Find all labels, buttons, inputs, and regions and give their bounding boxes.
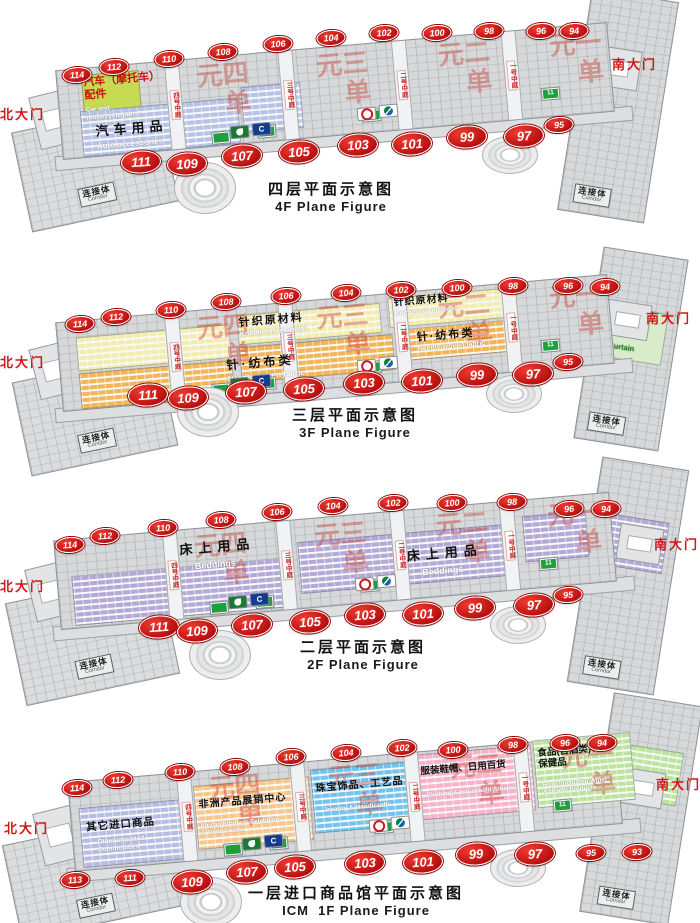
bank-icon [355, 577, 375, 592]
bank-glyph [360, 107, 373, 120]
floor-title: 二层平面示意图2F Plane Figure [300, 636, 426, 672]
atrium-label: 二号中庭 [395, 540, 406, 571]
floor-2f: 连接体Corridor连接体Corridor四号中庭三号中庭二号中庭一号中庭四单… [0, 468, 700, 700]
bank-icon [357, 107, 377, 122]
bank-icon [369, 818, 389, 833]
atrium-label: 四号中庭 [168, 560, 179, 591]
unit-watermark: 三单元 [314, 48, 373, 136]
door-number-chip: 11 [540, 558, 558, 570]
floor-3f: 连接体Corridor窗帘布类Curtain连接体Corridor四号中庭三号中… [0, 240, 700, 468]
floor-title: 四层平面示意图4F Plane Figure [268, 178, 394, 214]
bank-glyph [248, 840, 256, 848]
floor-title-en: 4F Plane Figure [268, 199, 394, 214]
floor-title-en: 3F Plane Figure [292, 425, 418, 440]
corridor-label: 连接体Corridor [77, 428, 117, 454]
floor-title-zh: 四层平面示意图 [268, 178, 394, 199]
atrium-label: 一号中庭 [506, 60, 517, 91]
floor-1f: 连接体Corridor连接体Corridor四号中庭三号中庭二号中庭一号中庭四单… [0, 700, 700, 923]
floor-title-en: 2F Plane Figure [300, 657, 426, 672]
bank-icon [390, 815, 410, 830]
bank-glyph [360, 359, 373, 372]
bank-glyph [358, 578, 371, 591]
bank-icon [228, 595, 248, 610]
north-gate-label: 北大门 [4, 818, 49, 837]
door-number-chip [212, 131, 230, 143]
floor-title-zh: 三层平面示意图 [292, 404, 418, 425]
bank-icon [242, 836, 262, 851]
floorplan-document: 连接体Corridor连接体Corridor四号中庭三号中庭二号中庭一号中庭四单… [0, 0, 700, 923]
bank-icon: C [263, 834, 283, 849]
zone-label-zh: 汽车（摩托车）配件 [83, 70, 162, 103]
atrium-label: 三号中庭 [283, 80, 294, 111]
north-gate-label: 北大门 [0, 576, 45, 595]
gate-badge-106: 106 [262, 503, 292, 521]
corridor-label: 连接体Corridor [77, 182, 117, 208]
door-number-chip [210, 602, 228, 614]
door-number-chip: 11 [542, 88, 560, 100]
floor-4f: 连接体Corridor连接体Corridor四号中庭三号中庭二号中庭一号中庭四单… [0, 0, 700, 240]
south-gate-label: 南大门 [654, 534, 699, 553]
corridor-label: 连接体Corridor [582, 655, 621, 679]
corridor-label: 连接体Corridor [76, 893, 116, 919]
atrium-label: 二号中庭 [409, 782, 420, 813]
atrium-label: 一号中庭 [506, 312, 517, 343]
atrium-label: 一号中庭 [504, 530, 515, 561]
bank-glyph [372, 819, 385, 832]
atrium-label: 四号中庭 [182, 802, 193, 833]
unit-watermark: 一单元 [547, 28, 606, 116]
bank-icon: C [250, 592, 270, 607]
atrium-strip: 一号中庭 [499, 501, 522, 590]
south-gate-label: 南大门 [656, 774, 700, 793]
floor-title-en: ICM 1F Plane Figure [248, 903, 464, 918]
atrium-label: 三号中庭 [295, 792, 306, 823]
south-gate-label: 南大门 [612, 54, 657, 73]
bank-glyph [384, 106, 394, 116]
atrium-label: 二号中庭 [397, 70, 408, 101]
atrium-label: 二号中庭 [397, 322, 408, 353]
gate-badge-97: 97 [514, 841, 556, 867]
gate-badge-104: 104 [318, 497, 348, 515]
bank-glyph [236, 128, 244, 136]
bank-icon [230, 125, 250, 140]
bank-icon: C [252, 122, 272, 137]
bank-icon [378, 104, 398, 119]
unit-watermark: 二单元 [435, 38, 494, 126]
corridor-label: 连接体Corridor [587, 411, 626, 435]
atrium-strip: 一号中庭 [501, 283, 524, 372]
south-gate-label: 南大门 [646, 308, 691, 327]
atrium-label: 一号中庭 [518, 772, 529, 803]
bank-glyph [384, 358, 394, 368]
floor-title: 三层平面示意图3F Plane Figure [292, 404, 418, 440]
door-number-chip [224, 843, 242, 855]
bank-glyph [396, 818, 406, 828]
atrium-label: 四号中庭 [170, 342, 181, 373]
door-number-chip: 11 [554, 799, 572, 811]
bank-icon [378, 356, 398, 371]
floor-title-zh: 一层进口商品馆平面示意图 [248, 882, 464, 903]
door-number-chip: 11 [542, 340, 560, 352]
atrium-label: 三号中庭 [281, 550, 292, 581]
bank-glyph [234, 598, 242, 606]
floor-title-zh: 二层平面示意图 [300, 636, 426, 657]
floor-title: 一层进口商品馆平面示意图ICM 1F Plane Figure [248, 882, 464, 918]
corridor-label: 连接体Corridor [74, 654, 114, 680]
atrium-strip: 一号中庭 [501, 31, 524, 120]
corridor-label: 连接体Corridor [597, 885, 636, 909]
unit-watermark: 三单元 [312, 518, 371, 606]
atrium-label: 四号中庭 [170, 90, 181, 121]
corridor-label: 连接体Corridor [572, 183, 611, 207]
bank-glyph [382, 576, 392, 586]
north-gate-label: 北大门 [0, 104, 45, 123]
north-gate-label: 北大门 [0, 352, 45, 371]
gate-badge-102: 102 [369, 24, 399, 42]
bank-icon [376, 574, 396, 589]
